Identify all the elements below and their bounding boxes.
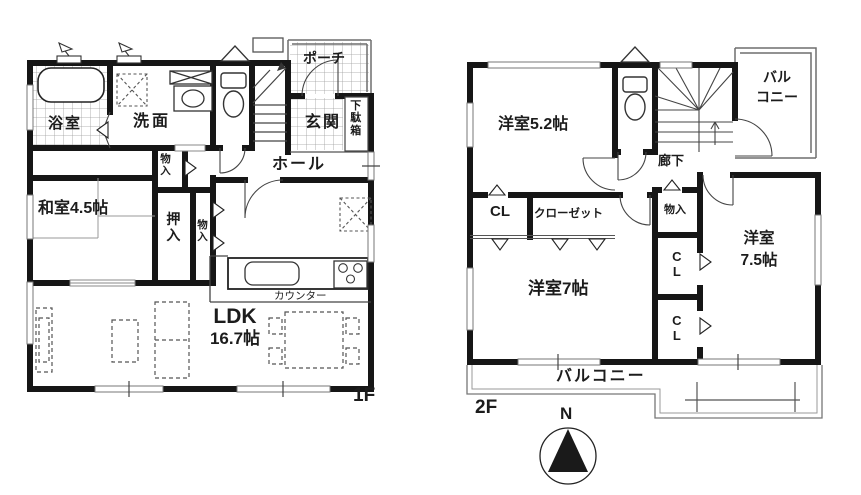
room-label-storage: 物入 xyxy=(197,220,208,244)
label-counter: カウンター xyxy=(274,291,327,303)
floor2-label: 2F xyxy=(475,398,497,419)
room-label-porch: ポーチ xyxy=(303,51,345,66)
room-label-cl2: CL xyxy=(670,250,684,279)
dining-table-icon xyxy=(269,312,359,368)
room-label-balcony-bottom: バルコニー xyxy=(556,368,646,386)
living-furniture-icons xyxy=(36,302,189,378)
room-label-shoe-cabinet: 下駄箱 xyxy=(350,100,362,137)
room-label-hall: ホール xyxy=(272,156,326,174)
room-label-cl3: CL xyxy=(670,314,684,343)
compass-north-label: N xyxy=(560,405,572,424)
stove-icon xyxy=(334,261,367,288)
table-icon xyxy=(112,320,138,362)
sliding-door-icon xyxy=(175,145,205,151)
stairs-1f-icon xyxy=(253,68,287,141)
toilet-icon xyxy=(623,77,647,120)
bedroom75-door-arc xyxy=(703,175,733,205)
room-label-ldk: LDK xyxy=(196,305,274,328)
washer-pan-icon xyxy=(117,74,147,106)
room-label-bedroom7: 洋室7帖 xyxy=(528,280,588,299)
vent-window xyxy=(253,38,283,52)
room-label-cl: CL xyxy=(490,204,510,221)
vanity-icon xyxy=(170,71,212,111)
room-label-bedroom52: 洋室5.2帖 xyxy=(498,116,568,134)
fridge-space-icon xyxy=(340,198,371,231)
room-label-corridor: 廊下 xyxy=(658,154,684,168)
room-label-ldk-size: 16.7帖 xyxy=(192,330,278,349)
bedroom7-door-arc xyxy=(620,195,650,225)
storage-door-marker xyxy=(185,160,196,176)
storage-door-marker xyxy=(213,202,224,218)
storage-door-marker xyxy=(664,180,680,190)
room-label-balcony-top-2: コニー xyxy=(742,90,812,105)
room-label-balcony-top-1: バル xyxy=(746,70,808,85)
hall-ldk-door-arc xyxy=(245,180,283,218)
vent-triangle-icon xyxy=(221,46,249,61)
room-label-storage-2f: 物入 xyxy=(664,204,686,216)
balcony-door-arc xyxy=(735,119,772,156)
floor-plan-page: 浴室 洗面 ポーチ 玄関 下駄箱 ホール 物入 和室4.5帖 押入 物入 カウン… xyxy=(0,0,861,495)
floorplan-graphics xyxy=(0,0,861,495)
room-label-bathroom: 浴室 xyxy=(48,116,82,133)
stairs-2f-icon xyxy=(655,68,733,152)
toilet-icon xyxy=(221,73,246,117)
bathtub-icon xyxy=(38,68,104,102)
storage-door-marker xyxy=(213,235,224,251)
kitchen-sink-icon xyxy=(245,262,299,285)
cl-door-marker xyxy=(489,185,505,195)
room-label-bedroom75-1: 洋室 xyxy=(726,230,792,247)
room-label-oshiire: 押入 xyxy=(166,212,181,243)
room-label-bedroom75-2: 7.5帖 xyxy=(722,252,796,269)
vent-triangle-icon xyxy=(621,47,649,62)
compass-icon xyxy=(540,428,596,484)
toilet-door-arc xyxy=(618,152,646,180)
bedroom52-door-arc xyxy=(583,158,615,190)
closet-front-line xyxy=(470,236,615,239)
floor1-label: 1F xyxy=(353,386,375,407)
room-label-entrance: 玄関 xyxy=(305,114,341,132)
room-label-hall-storage: 物入 xyxy=(160,154,171,178)
toilet-door-arc xyxy=(220,148,245,173)
room-label-japanese-room: 和室4.5帖 xyxy=(38,200,108,218)
room-label-closet: クローゼット xyxy=(534,208,603,221)
room-label-washroom: 洗面 xyxy=(133,113,171,131)
